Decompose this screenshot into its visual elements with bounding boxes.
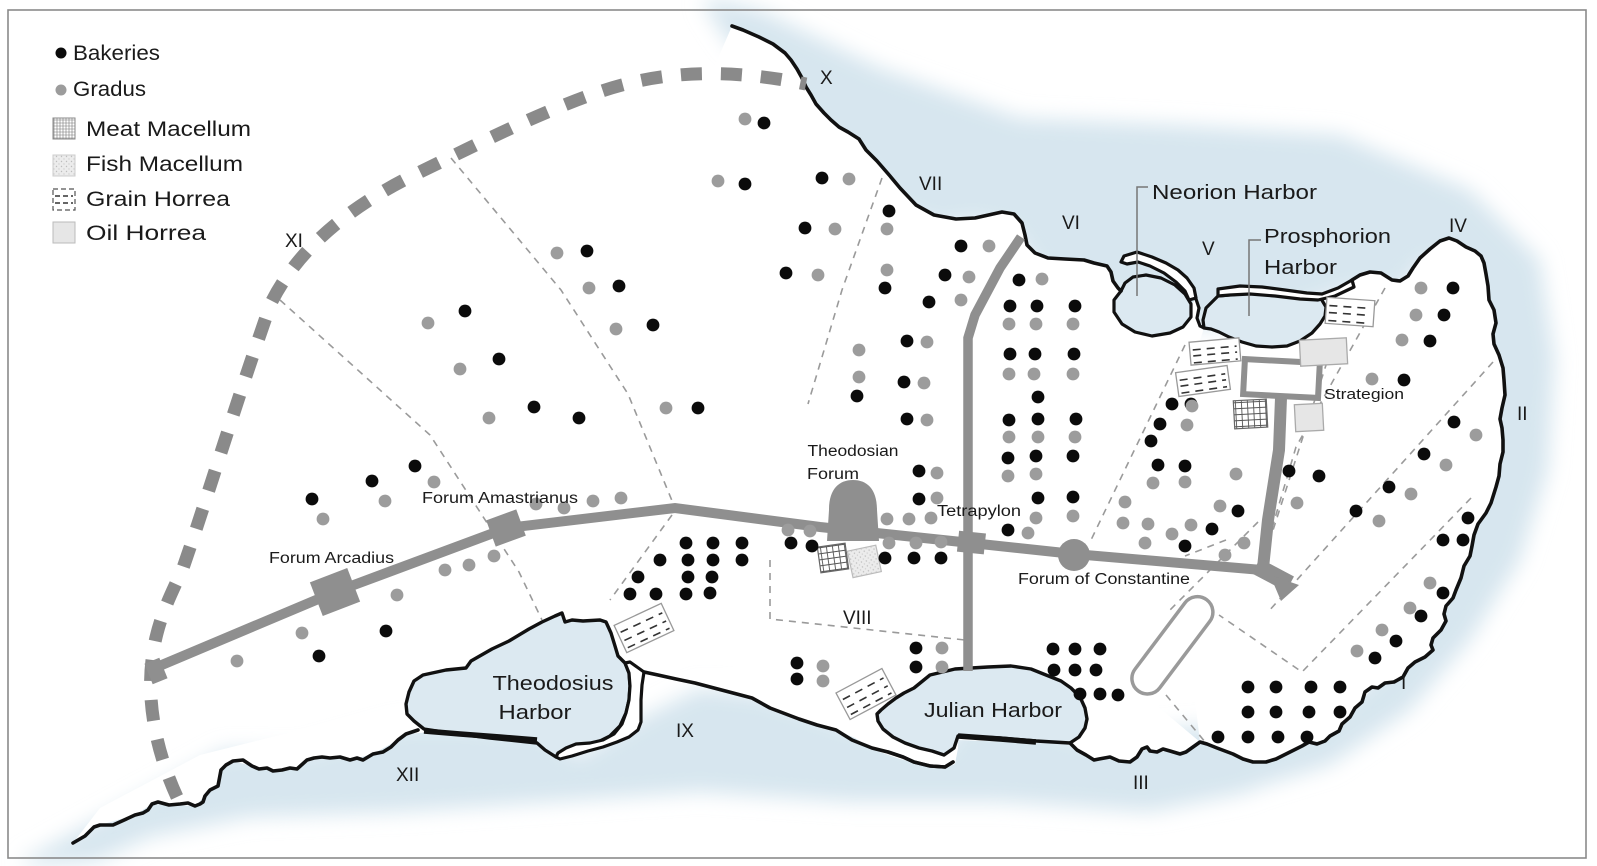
svg-text:Forum: Forum (807, 466, 859, 483)
svg-text:Grain Horrea: Grain Horrea (86, 187, 230, 211)
svg-text:X: X (820, 68, 833, 89)
svg-text:Neorion Harbor: Neorion Harbor (1152, 182, 1317, 204)
svg-text:Tetrapylon: Tetrapylon (937, 503, 1021, 520)
svg-text:Meat Macellum: Meat Macellum (86, 117, 251, 141)
svg-text:Harbor: Harbor (1264, 257, 1337, 279)
svg-text:Forum Amastrianus: Forum Amastrianus (422, 490, 578, 507)
svg-text:Harbor: Harbor (499, 702, 572, 724)
svg-text:III: III (1133, 773, 1149, 794)
svg-text:Strategion: Strategion (1324, 386, 1404, 403)
svg-text:Julian Harbor: Julian Harbor (924, 700, 1062, 722)
svg-text:Oil Horrea: Oil Horrea (86, 221, 206, 245)
svg-text:Forum Arcadius: Forum Arcadius (269, 550, 394, 567)
svg-text:I: I (1401, 673, 1406, 694)
svg-text:VIII: VIII (843, 608, 872, 629)
svg-text:XII: XII (396, 765, 419, 786)
svg-text:IX: IX (676, 721, 694, 742)
svg-text:Bakeries: Bakeries (73, 41, 160, 65)
svg-text:Forum of Constantine: Forum of Constantine (1018, 571, 1190, 588)
svg-text:Prosphorion: Prosphorion (1264, 226, 1391, 248)
svg-text:Theodosius: Theodosius (493, 673, 614, 695)
svg-text:V: V (1202, 239, 1215, 260)
svg-text:Gradus: Gradus (73, 77, 146, 101)
svg-text:VI: VI (1062, 213, 1080, 234)
svg-text:XI: XI (285, 231, 303, 252)
svg-text:IV: IV (1449, 216, 1467, 237)
svg-text:Theodosian: Theodosian (808, 443, 899, 460)
svg-text:VII: VII (919, 174, 942, 195)
svg-text:Fish Macellum: Fish Macellum (86, 152, 243, 176)
svg-text:II: II (1517, 404, 1528, 425)
